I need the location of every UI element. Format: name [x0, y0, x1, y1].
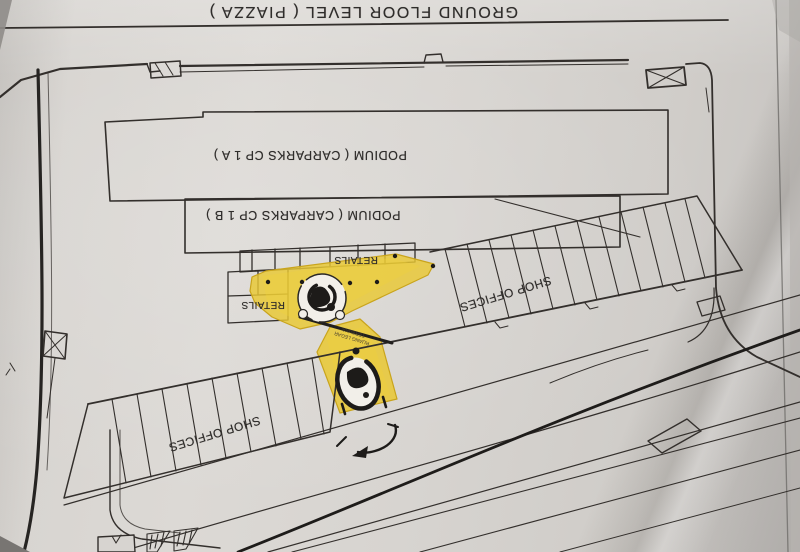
- podium-cp1a-label: PODIUM ( CARPARKS CP 1 A ): [180, 148, 440, 162]
- floor-plan-photo: GROUND FLOOR LEVEL ( PIAZZA ) PODIUM ( C…: [0, 0, 800, 552]
- arcade-front-line: [88, 270, 742, 404]
- paper-edge-line: [772, 0, 800, 552]
- retails-left-label: RETAILS: [233, 299, 293, 310]
- photo-corner-shadows: [0, 0, 30, 552]
- direction-arrow-icon: [337, 424, 398, 458]
- column-box-icon-left: [43, 331, 67, 359]
- podium-cp1b-outline: [185, 196, 640, 253]
- retails-top-label: RETAILS: [326, 254, 386, 265]
- plan-title: GROUND FLOOR LEVEL ( PIAZZA ): [143, 2, 583, 20]
- lower-shop-offices-strip: [64, 352, 340, 498]
- road-lines: [64, 288, 800, 552]
- guard-house-outline: [98, 535, 135, 552]
- title-rule-line: [0, 20, 728, 28]
- island-parallelogram-outline: [648, 419, 701, 453]
- left-road-line: [6, 70, 55, 552]
- circular-feature-icon: [298, 274, 346, 322]
- plan-linework: [0, 0, 800, 552]
- podium-cp1b-label: PODIUM ( CARPARKS CP 1 B ): [173, 208, 433, 222]
- column-box-icon: [646, 67, 686, 88]
